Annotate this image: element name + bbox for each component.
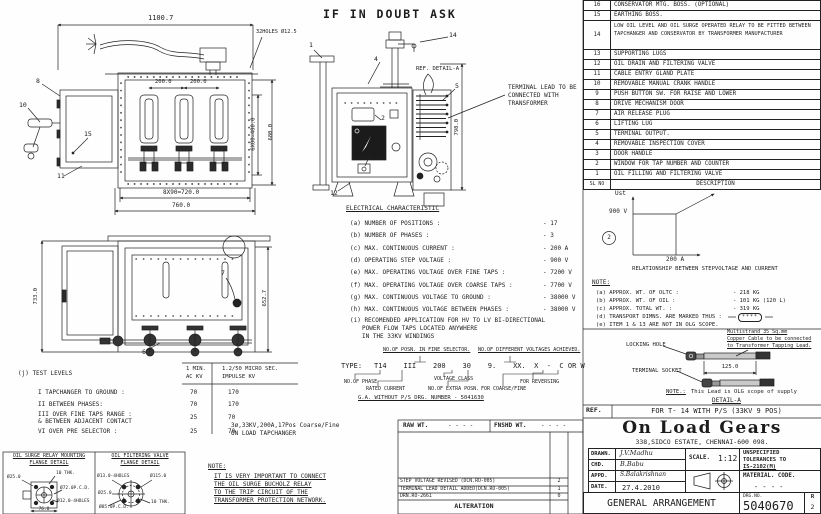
side-view-drawing [42, 236, 272, 356]
test-r2-v2: 170 [228, 402, 239, 409]
mechanism-view-drawing [310, 32, 505, 206]
protection-note-line1: IT IS VERY IMPORTANT TO CONNECT [214, 474, 326, 481]
test-r3-v2: 70 [228, 415, 235, 422]
table-row: 2WINDOW FOR TAP NUMBER AND COUNTER [584, 160, 820, 170]
protection-note-line2: THE OIL SURGE BUCHOLZ RELAY [214, 482, 312, 489]
alteration-row-desc: STEP VOLTAGE REVISED (DCN.RO-005) [400, 479, 495, 485]
alteration-row-desc: TERMINAL LEAD DETAIL ADDED(DCN.RO-005) [400, 487, 510, 493]
graph-caption: RELATIONSHIP BETWEEN STEPVOLTAGE AND CUR… [600, 266, 810, 272]
elec-c-label: (c) MAX. CONTINUOUS CURRENT : [350, 246, 455, 253]
elec-g-label: (g) MAX. CONTINUOUS VOLTAGE TO GROUND : [350, 295, 491, 302]
dim-680: 680.0 [268, 124, 274, 141]
weight-note-b-value: - 101 KG (120 L) [733, 298, 786, 304]
callout-14: 14 [449, 32, 457, 39]
table-row: 15EARTHING BOSS. [584, 11, 820, 21]
test-levels-heading: (j) TEST LEVELS [18, 371, 72, 378]
callout-11: 11 [57, 173, 65, 180]
elec-c-value: - 200 A [543, 246, 568, 253]
table-row: 6LIFTING LUG [584, 120, 820, 130]
terminal-socket-label: TERMINAL SOCKET [632, 368, 682, 374]
surge-flange-title-1: OIL SURGE RELAY MOUNTING [6, 454, 92, 460]
chd-signature: B.Babu [620, 461, 644, 468]
table-row: 1OIL FILLING AND FILTERING VALVE [584, 170, 820, 180]
filter-d25: Ø25.0 [98, 491, 112, 496]
elec-h-value: - 38000 V [543, 307, 576, 314]
weight-note-d: (d) TRANSPORT DIMNS. ARE MARKED THUS : [596, 314, 722, 320]
surge-flange-title-2: FLANGE DETAIL [6, 461, 92, 467]
elec-h-label: (h) MAX. CONTINUOUS VOLTAGE BETWEEN PHAS… [350, 307, 509, 314]
detail-a-dim-125: 125.0 [716, 364, 744, 370]
alteration-row-rev: 0 [550, 494, 568, 500]
test-col1-line1: 1 MIN. [186, 366, 206, 372]
elec-i-line2: POWER FLOW TAPS LOCATED ANYWHERE [362, 326, 478, 333]
callout-10: 10 [19, 102, 27, 109]
ref-text: FOR T- 14 WITH P/S (33KV 9 POS) [612, 407, 821, 415]
projection-symbol-icon [685, 470, 740, 493]
cable-gland [86, 34, 96, 54]
type-label-extra-posn: NO.OF EXTRA POSN. [428, 387, 479, 393]
test-col1-line2: AC KV [186, 374, 203, 380]
terminal-lead-note-1: TERMINAL LEAD TO BE [508, 85, 577, 92]
drawn-label: DRAWN. [591, 451, 611, 457]
transport-dim-marker: **** [738, 313, 762, 322]
date-value: 27.4.2010 [622, 484, 660, 492]
type-label-coarse-fine: FOR COARSE/FINE [481, 387, 526, 393]
rev-label: R [805, 494, 820, 500]
oltc-label-line1: 3ø,33KV,200A,17Pos Coarse/Fine [231, 423, 339, 430]
elec-i-line1: (i) RECOMENDED APPLICATION FOR HV TO LV … [350, 318, 545, 325]
graph-y-tick: 900 V [609, 209, 627, 216]
dim-1100-7: 1100.7 [148, 14, 173, 22]
scale-label: SCALE. [689, 455, 710, 462]
elec-i-line3: IN THE 33KV WINDINGS [362, 334, 434, 341]
terminal-lead-note-2: CONNECTED WITH [508, 93, 559, 100]
table-row: 9PUSH BUTTON SW. FOR RAISE AND LOWER [584, 90, 820, 100]
filter-flange-title-2: FLANGE DETAIL [97, 461, 183, 467]
dim-200a: 200.0 [155, 79, 172, 85]
document-title: GENERAL ARRANGEMENT [584, 499, 739, 510]
lead-note-text: This Lead is OLG scope of supply [691, 389, 797, 395]
alteration-row-rev: 1 [550, 487, 568, 493]
surge-d25: Ø25.0 [7, 475, 21, 480]
rev-value: 2 [805, 504, 820, 511]
test-col2-line1: 1.2/50 MICRO SEC. [222, 366, 278, 372]
type-label-current: RATED CURRENT [366, 387, 405, 393]
company-address: 338,SIDCO ESTATE, CHENNAI-600 098. [583, 439, 821, 446]
type-label-fine-selector: NO.OF POSN. IN FINE SELECTOR. [383, 348, 470, 354]
oltc-label-line2: ON LOAD TAPCHANGER [231, 431, 296, 438]
company-name: On Load Gears [583, 419, 821, 439]
dim-798: 798.0 [454, 119, 460, 136]
protection-note-heading: NOTE: [208, 464, 226, 471]
dim-733: 733.0 [33, 288, 39, 305]
terminal-lead-note-3: TRANSFORMER [508, 101, 548, 108]
weight-note-c-value: - 319 KG [733, 306, 760, 312]
surge-d76: 76.0 [31, 507, 57, 512]
chd-label: CHD. [591, 462, 604, 468]
callout-7: 7 [221, 270, 225, 277]
table-row: 10REMOVABLE MANUAL CRANK HANDLE [584, 80, 820, 90]
filter-pcd: Ø85.0P.C.D. [99, 505, 129, 510]
test-r2-label: II BETWEEN PHASES: [38, 402, 103, 409]
graph-x-tick: 200 A [666, 257, 684, 264]
callout-1: 1 [309, 42, 313, 49]
surge-thk: 10 THK. [56, 471, 75, 476]
appd-label: APPD. [591, 473, 608, 479]
test-r4-label: VI OVER PRE SELECTOR : [38, 429, 117, 436]
callout-6: 6 [142, 349, 146, 356]
tolerance-line-1: UNSPECIFIED [743, 450, 779, 456]
cable-note-3: to Transformer Tapping Lead. [727, 344, 811, 350]
type-label-voltages: NO.OF DIFFERENT VOLTAGES ACHIEVED. [478, 348, 580, 354]
weight-note-b: (b) APPROX. WT. OF OIL : [596, 298, 675, 304]
type-code-value: T14 III 200 30 9. XX. X - C OR W [374, 362, 585, 370]
fnshd-wt-label: FNSHD WT. [494, 423, 527, 430]
ga-without-ps-note: G.A. WITHOUT P/S DRG. NUMBER - 5041630 [358, 395, 484, 401]
callout-4: 4 [374, 56, 378, 63]
table-row: 11CABLE ENTRY GLAND PLATE [584, 70, 820, 80]
date-label: DATE. [591, 484, 608, 490]
dim-652: 652.7 [262, 290, 268, 307]
front-view-drawing [24, 25, 276, 215]
raw-wt-label: RAW WT. [403, 423, 428, 430]
dim-760: 760.0 [172, 203, 190, 210]
test-r3-v1: 25 [190, 415, 197, 422]
locking-hole-label: LOCKING HOLE [626, 342, 666, 348]
filter-thk: 10 THK. [151, 500, 170, 505]
dim-480: 6X80=480.0 [250, 118, 256, 151]
filter-flange-title-1: OIL FILTERING VALVE [97, 454, 183, 460]
engineering-drawing-sheet: IF IN DOUBT ASK 1100.7 32HOLES Ø12.5 200… [0, 0, 821, 514]
callout-3: 3 [370, 149, 374, 156]
drawn-signature: J.V.Madhu [620, 450, 653, 457]
material-code-value: - - - - [754, 483, 784, 491]
elec-d-value: - 900 V [543, 258, 568, 265]
alteration-footer: ALTERATION [398, 503, 550, 510]
parts-list-table: 16CONSERVATOR MTG. BOSS. (OPTIONAL) 15EA… [583, 0, 821, 190]
type-label-phase: NO.OF PHASE [344, 380, 377, 386]
lead-note-label: NOTE.: [666, 389, 686, 395]
warning-title: IF IN DOUBT ASK [323, 8, 457, 21]
callout-12: 12 [330, 190, 338, 197]
protection-note-line3: TO THE TRIP CIRCUIT OF THE [214, 490, 308, 497]
surge-holes: Ø12.0-4HOLES [57, 499, 90, 504]
alteration-row-desc: DRN.RO-2661 [400, 494, 432, 500]
table-row: 14LOW OIL LEVEL AND OIL SURGE OPERATED R… [584, 21, 820, 50]
detail-a-caption: DETAIL-A [712, 398, 741, 405]
alteration-row-rev: 2 [550, 479, 568, 485]
table-row: 13SUPPORTING LUGS [584, 50, 820, 60]
test-r3-label-2: & BETWEEN ADJACENT CONTACT [38, 419, 132, 426]
fnshd-wt-value: - - - - [541, 423, 566, 430]
dim-200b: 200.0 [190, 79, 207, 85]
test-r2-v1: 70 [190, 402, 197, 409]
elec-a-value: - 17 [543, 221, 557, 228]
label-32-holes: 32HOLES Ø12.5 [256, 30, 297, 36]
table-row: 5TERMINAL OUTPUT. [584, 130, 820, 140]
cable-note-2: Copper Cable to be connected [727, 337, 811, 343]
table-row: 7AIR RELEASE PLUG [584, 110, 820, 120]
callout-2: 2 [381, 115, 385, 122]
raw-wt-value: - - - - [448, 423, 473, 430]
weight-note-a-value: - 218 KG [733, 290, 760, 296]
surge-pcd: Ø72.0P.C.D. [60, 486, 90, 491]
type-prefix: TYPE: [341, 362, 362, 370]
elec-b-label: (b) NUMBER OF PHASES : [350, 233, 429, 240]
appd-signature: S.Balakrishnan [620, 472, 666, 479]
elec-g-value: - 38000 V [543, 295, 576, 302]
stepvoltage-graph [603, 194, 715, 255]
elec-e-label: (e) MAX. OPERATING VOLTAGE OVER FINE TAP… [350, 270, 505, 277]
weight-note-e: (e) ITEM 1 & 13 ARE NOT IN OLG SCOPE. [596, 322, 719, 328]
test-r1-label: I TAPCHANGER TO GROUND : [38, 390, 125, 397]
type-label-voltage-class: VOLTAGE CLASS [434, 377, 473, 383]
test-col2-line2: IMPULSE KV [222, 374, 255, 380]
tolerance-line-2: TOLERANCES TO [743, 457, 786, 463]
callout-15: 15 [84, 131, 92, 138]
table-header-row: SL NODESCRIPTION [584, 180, 820, 189]
table-row: 8DRIVE MECHANISM DOOR [584, 100, 820, 110]
callout-5: 5 [455, 83, 459, 90]
table-row: 4REMOVABLE INSPECTION COVER [584, 140, 820, 150]
test-r1-v2: 170 [228, 390, 239, 397]
drg-no-value: 5040670 [743, 500, 794, 514]
graph-callout-2: 2 [603, 235, 615, 242]
elec-d-label: (d) OPERATING STEP VOLTAGE : [350, 258, 451, 265]
material-code-label: MATERIAL. CODE. [743, 473, 795, 480]
weight-note-a: (a) APPROX. WT. OF OLTC : [596, 290, 679, 296]
test-r1-v1: 70 [190, 390, 197, 397]
elec-f-label: (f) MAX. OPERATING VOLTAGE OVER COARSE T… [350, 283, 513, 290]
scale-value: 1:12 [718, 454, 737, 463]
filter-d115: Ø115.0 [150, 474, 166, 479]
electrical-heading: ELECTRICAL CHARACTERISTIC [346, 205, 439, 212]
type-label-reversing: FOR REVERSING [520, 380, 559, 386]
weight-note-heading: NOTE: [592, 280, 610, 287]
table-row: 12OIL DRAIN AND FILTERING VALVE [584, 60, 820, 70]
alteration-table-rules [398, 420, 583, 514]
callout-8: 8 [36, 78, 40, 85]
dim-720: 8X90=720.0 [163, 190, 199, 197]
ref-label: REF. [586, 407, 602, 414]
table-row: 16CONSERVATOR MTG. BOSS. (OPTIONAL) [584, 1, 820, 11]
table-row: 3DOOR HANDLE [584, 150, 820, 160]
elec-e-value: - 7200 V [543, 270, 572, 277]
elec-b-value: - 3 [543, 233, 554, 240]
weight-note-c: (c) APPROX. TOTAL WT. : [596, 306, 672, 312]
ref-detail-a-label: REF. DETAIL-A [416, 66, 459, 72]
cable-note-1: Multistrand 35 Sq.mm [727, 330, 787, 336]
graph-y-label: Ust [615, 191, 626, 198]
protection-note-line4: TRANSFORMER PROTECTION NETWORK. [214, 498, 326, 505]
test-r4-v1: 25 [190, 429, 197, 436]
elec-a-label: (a) NUMBER OF POSITIONS : [350, 221, 440, 228]
elec-f-value: - 7700 V [543, 283, 572, 290]
filter-holes: Ø13.0-4HOLES [97, 474, 130, 479]
